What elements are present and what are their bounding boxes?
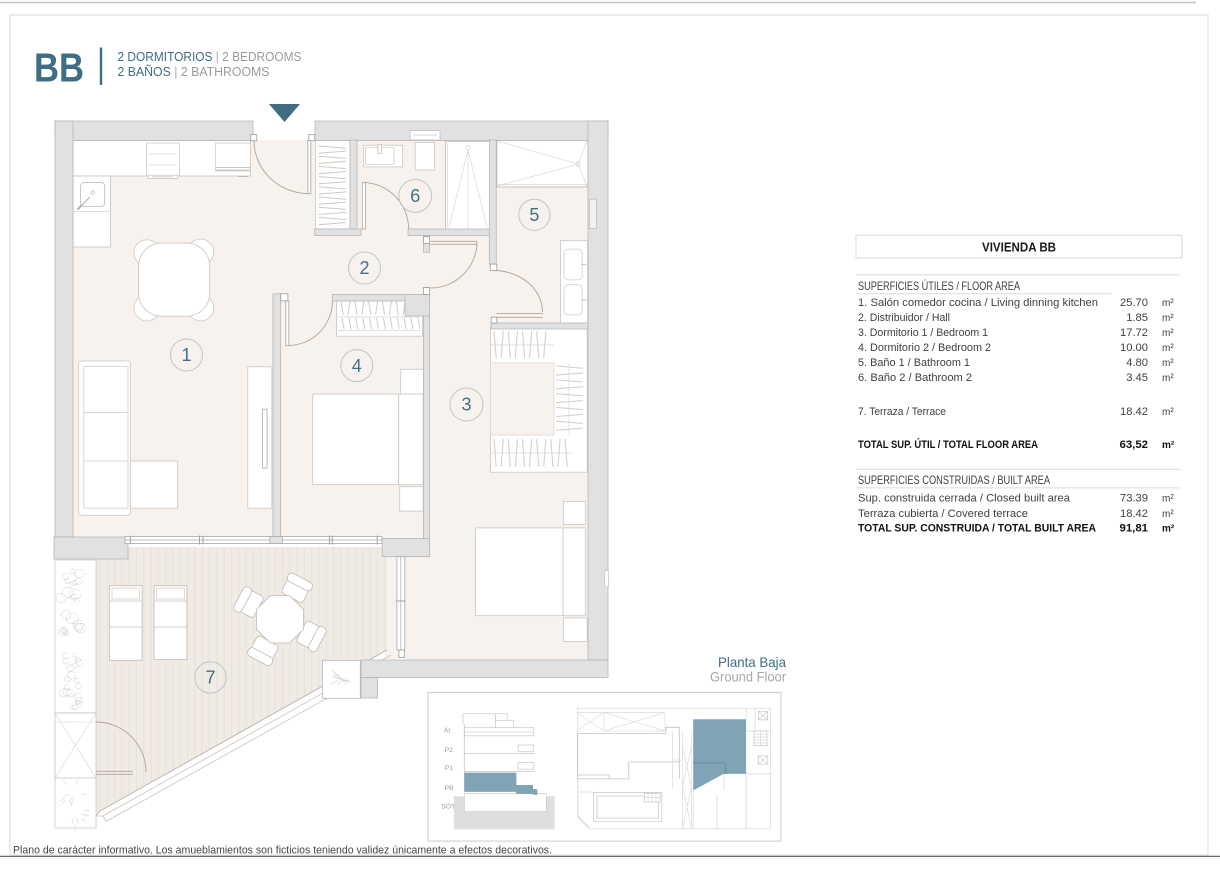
svg-text:5. Baño 1 / Bathroom 1: 5. Baño 1 / Bathroom 1: [858, 357, 970, 369]
svg-text:6: 6: [410, 186, 420, 206]
svg-text:Át.: Át.: [444, 726, 452, 735]
svg-text:Plano de carácter informativo.: Plano de carácter informativo. Los amueb…: [13, 845, 552, 857]
svg-text:Sup. construida cerrada / Clos: Sup. construida cerrada / Closed built a…: [858, 493, 1071, 505]
svg-text:63,52: 63,52: [1119, 439, 1148, 451]
svg-text:3. Dormitorio 1 / Bedroom 1: 3. Dormitorio 1 / Bedroom 1: [858, 327, 988, 339]
svg-text:6. Baño 2 / Bathroom 2: 6. Baño 2 / Bathroom 2: [858, 372, 972, 384]
svg-text:2. Distribuidor / Hall: 2. Distribuidor / Hall: [858, 312, 950, 324]
svg-text:1. Salón comedor cocina / Livi: 1. Salón comedor cocina / Living dinning…: [858, 297, 1098, 309]
svg-text:m²: m²: [1162, 328, 1174, 339]
svg-text:BB: BB: [34, 45, 84, 91]
svg-text:7: 7: [205, 668, 215, 688]
svg-text:1: 1: [181, 345, 191, 365]
svg-text:4. Dormitorio 2 / Bedroom 2: 4. Dormitorio 2 / Bedroom 2: [858, 342, 991, 354]
svg-text:3: 3: [461, 395, 471, 415]
svg-text:2 DORMITORIOS | 2 BEDROOMS: 2 DORMITORIOS | 2 BEDROOMS: [118, 50, 302, 64]
svg-text:m²: m²: [1162, 509, 1174, 520]
svg-text:Terraza cubierta / Covered ter: Terraza cubierta / Covered terrace: [858, 508, 1028, 520]
svg-text:25.70: 25.70: [1120, 297, 1148, 309]
svg-text:TOTAL SUP. CONSTRUIDA / TOTAL: TOTAL SUP. CONSTRUIDA / TOTAL BUILT AREA: [858, 523, 1096, 535]
svg-text:3.45: 3.45: [1126, 372, 1148, 384]
svg-text:4: 4: [352, 356, 362, 376]
svg-text:PB: PB: [445, 785, 455, 792]
svg-text:10.00: 10.00: [1120, 342, 1148, 354]
svg-text:73.39: 73.39: [1120, 493, 1148, 505]
svg-text:m²: m²: [1162, 298, 1174, 309]
svg-text:m²: m²: [1162, 494, 1174, 505]
svg-text:P2: P2: [445, 747, 454, 754]
svg-text:4.80: 4.80: [1126, 357, 1148, 369]
svg-text:5: 5: [529, 205, 539, 225]
svg-text:SUPERFICIES CONSTRUIDAS / BUIL: SUPERFICIES CONSTRUIDAS / BUILT AREA: [858, 474, 1050, 487]
svg-text:91,81: 91,81: [1119, 523, 1148, 535]
svg-text:2: 2: [359, 258, 369, 278]
svg-text:m²: m²: [1162, 358, 1174, 369]
svg-text:2 BAÑOS | 2 BATHROOMS: 2 BAÑOS | 2 BATHROOMS: [118, 65, 270, 79]
svg-text:18.42: 18.42: [1120, 508, 1148, 520]
svg-text:m²: m²: [1162, 440, 1175, 451]
svg-text:m²: m²: [1162, 524, 1175, 535]
svg-text:m²: m²: [1162, 313, 1174, 324]
svg-text:TOTAL SUP. ÚTIL / TOTAL FLOOR: TOTAL SUP. ÚTIL / TOTAL FLOOR AREA: [858, 438, 1038, 451]
svg-text:Ground Floor: Ground Floor: [710, 670, 787, 685]
svg-text:7. Terraza / Terrace: 7. Terraza / Terrace: [858, 406, 946, 418]
svg-text:m²: m²: [1162, 373, 1174, 384]
svg-text:SUPERFICIES ÚTILES / FLOOR ARE: SUPERFICIES ÚTILES / FLOOR AREA: [858, 280, 1020, 293]
svg-text:m²: m²: [1162, 343, 1174, 354]
svg-text:VIVIENDA BB: VIVIENDA BB: [982, 241, 1056, 255]
svg-text:m²: m²: [1162, 407, 1174, 418]
svg-text:1.85: 1.85: [1126, 312, 1148, 324]
svg-text:P1: P1: [445, 765, 454, 772]
svg-text:18.42: 18.42: [1120, 406, 1148, 418]
svg-text:17.72: 17.72: [1120, 327, 1148, 339]
svg-text:Planta Baja: Planta Baja: [718, 654, 786, 670]
